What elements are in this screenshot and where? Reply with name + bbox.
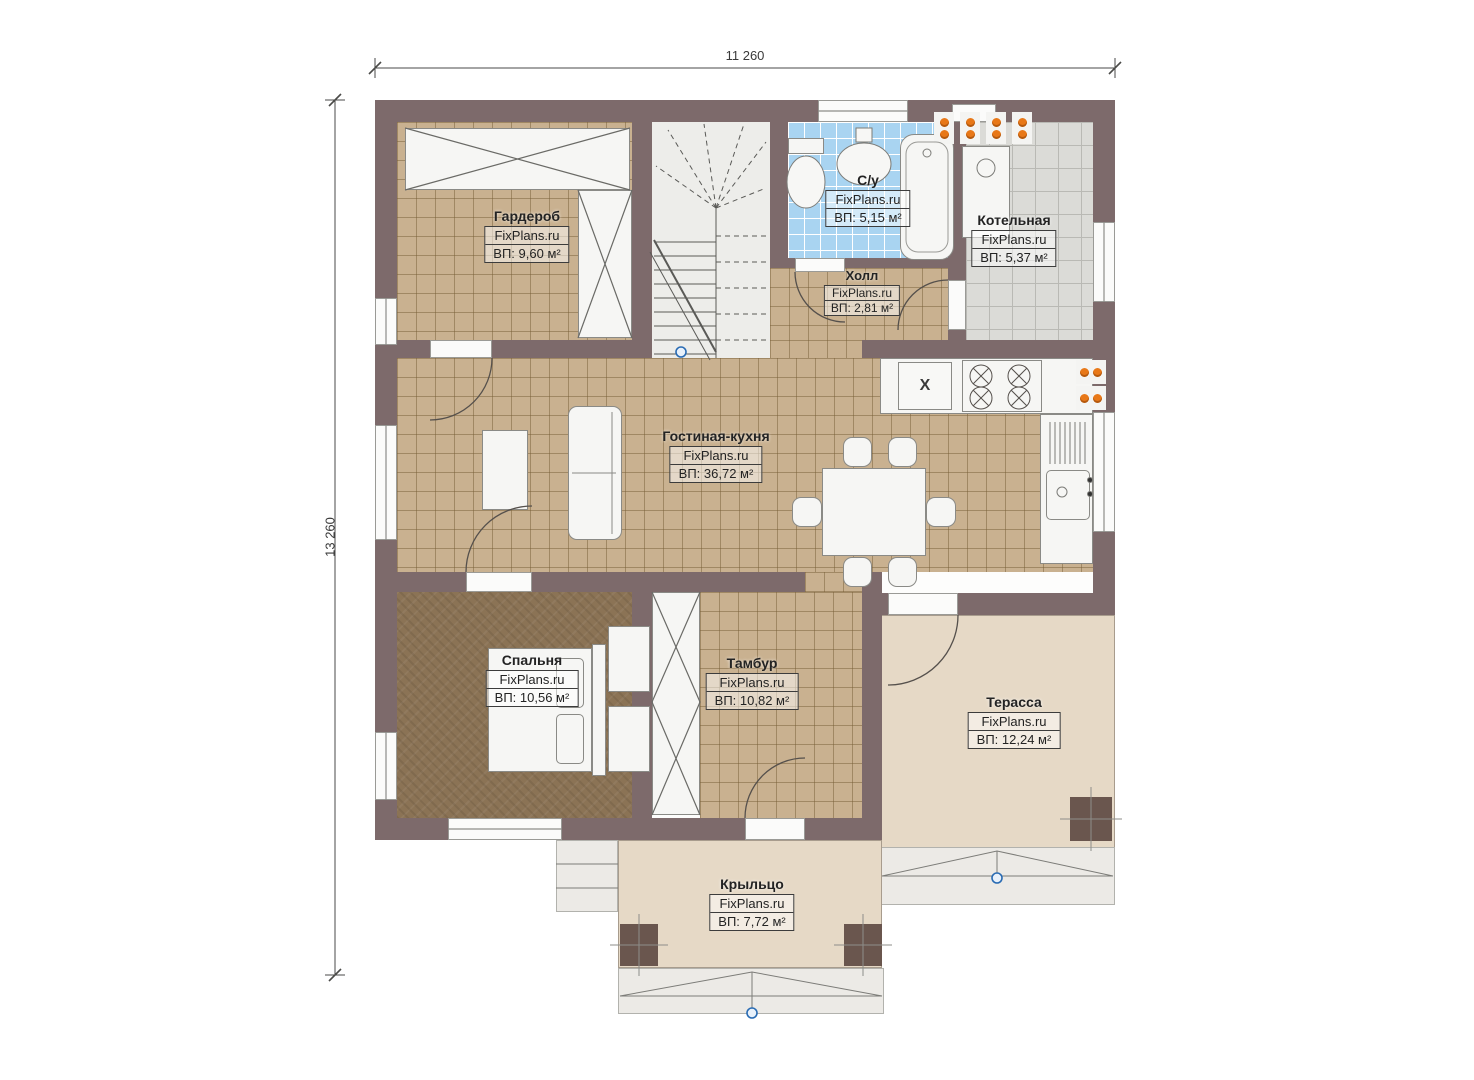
closet-wardrobe-top — [405, 128, 630, 190]
room-label-wardrobe: Гардероб FixPlans.ru ВП: 9,60 м² — [484, 208, 569, 263]
dining-chair — [843, 557, 872, 587]
bed-pillow — [556, 714, 584, 764]
radiator-icon — [960, 112, 980, 144]
watermark: FixPlans.ru — [969, 713, 1060, 730]
dining-chair — [792, 497, 822, 527]
dining-chair — [843, 437, 872, 467]
window-top — [818, 100, 908, 122]
radiator-icon — [934, 112, 954, 144]
room-label-tambour: Тамбур FixPlans.ru ВП: 10,82 м² — [706, 655, 799, 710]
dimension-top-label: 11 260 — [726, 48, 765, 63]
window-left-1 — [375, 298, 397, 345]
sofa — [568, 406, 622, 540]
window-left-3 — [375, 732, 397, 800]
kitchen-sink-basin — [1046, 470, 1090, 520]
wall-boiler-bottom — [862, 340, 1095, 358]
room-area: ВП: 10,82 м² — [707, 691, 798, 709]
watermark: FixPlans.ru — [671, 447, 762, 464]
floor-hall-link — [770, 340, 862, 358]
window-right-2 — [1093, 412, 1115, 532]
watermark: FixPlans.ru — [487, 671, 578, 688]
room-area: ВП: 2,81 м² — [825, 300, 899, 315]
door-gap-wardrobe — [430, 340, 492, 358]
room-name: Котельная — [971, 212, 1056, 228]
door-gap-boiler — [948, 280, 966, 330]
room-label-hall: Холл FixPlans.ru ВП: 2,81 м² — [824, 268, 900, 317]
room-area: ВП: 10,56 м² — [487, 688, 578, 706]
wall-tambour-right — [862, 572, 882, 840]
dining-chair — [888, 437, 917, 467]
room-name: Холл — [824, 268, 900, 283]
watermark: FixPlans.ru — [707, 674, 798, 691]
nightstand — [608, 626, 650, 692]
radiator-icon — [1076, 386, 1106, 410]
wall-right — [1093, 100, 1115, 615]
room-name: Спальня — [486, 652, 579, 668]
watermark: FixPlans.ru — [710, 895, 793, 912]
watermark: FixPlans.ru — [826, 191, 909, 208]
terrace-pillar — [1070, 797, 1112, 841]
room-area: ВП: 7,72 м² — [710, 912, 793, 930]
dining-chair — [926, 497, 956, 527]
radiator-icon — [986, 112, 1006, 144]
floor-plan-canvas: X — [0, 0, 1474, 1080]
room-label-boiler: Котельная FixPlans.ru ВП: 5,37 м² — [971, 212, 1056, 267]
door-gap-porch — [745, 818, 805, 840]
room-area: ВП: 5,37 м² — [972, 248, 1055, 266]
watermark: FixPlans.ru — [825, 286, 899, 300]
porch-pillar-left — [620, 924, 658, 966]
room-name: С/у — [825, 172, 910, 188]
dimension-left-label: 13 260 — [323, 517, 338, 557]
room-label-living-kitchen: Гостиная-кухня FixPlans.ru ВП: 36,72 м² — [662, 428, 769, 483]
room-name: Терасса — [968, 694, 1061, 710]
room-name: Гардероб — [484, 208, 569, 224]
radiator-icon — [1076, 360, 1106, 384]
coffee-table — [482, 430, 528, 510]
wall-stairs-bath — [770, 122, 788, 268]
room-name: Гостиная-кухня — [662, 428, 769, 444]
closet-wardrobe-right — [578, 190, 632, 338]
closet-tambour — [652, 592, 700, 815]
porch-side-landing — [556, 840, 618, 912]
porch-steps — [618, 968, 884, 1014]
room-area: ВП: 5,15 м² — [826, 208, 909, 226]
window-left-2 — [375, 425, 397, 540]
porch-pillar-right — [844, 924, 882, 966]
window-right-1 — [1093, 222, 1115, 302]
watermark: FixPlans.ru — [972, 231, 1055, 248]
room-name: Крыльцо — [709, 876, 794, 892]
room-label-bedroom: Спальня FixPlans.ru ВП: 10,56 м² — [486, 652, 579, 707]
room-label-bathroom: С/у FixPlans.ru ВП: 5,15 м² — [825, 172, 910, 227]
room-area: ВП: 9,60 м² — [485, 244, 568, 262]
wall-wardrobe-stairs — [632, 122, 652, 358]
dining-table — [822, 468, 926, 556]
toilet-tank — [788, 138, 824, 154]
bed-headboard — [592, 644, 606, 776]
fridge-symbol: X — [898, 362, 952, 410]
fridge-x-mark: X — [920, 377, 931, 395]
room-area: ВП: 36,72 м² — [671, 464, 762, 482]
window-bottom-bedroom — [448, 818, 562, 840]
room-label-porch: Крыльцо FixPlans.ru ВП: 7,72 м² — [709, 876, 794, 931]
floor-stairs — [652, 122, 770, 358]
room-label-terrace: Терасса FixPlans.ru ВП: 12,24 м² — [968, 694, 1061, 749]
room-area: ВП: 12,24 м² — [969, 730, 1060, 748]
door-gap-terrace — [888, 593, 958, 615]
cooktop — [962, 360, 1042, 412]
dining-chair — [888, 557, 917, 587]
nightstand — [608, 706, 650, 772]
door-gap-bedroom — [466, 572, 532, 592]
terrace-steps — [880, 847, 1115, 905]
radiator-icon — [1012, 112, 1032, 144]
room-name: Тамбур — [706, 655, 799, 671]
watermark: FixPlans.ru — [485, 227, 568, 244]
